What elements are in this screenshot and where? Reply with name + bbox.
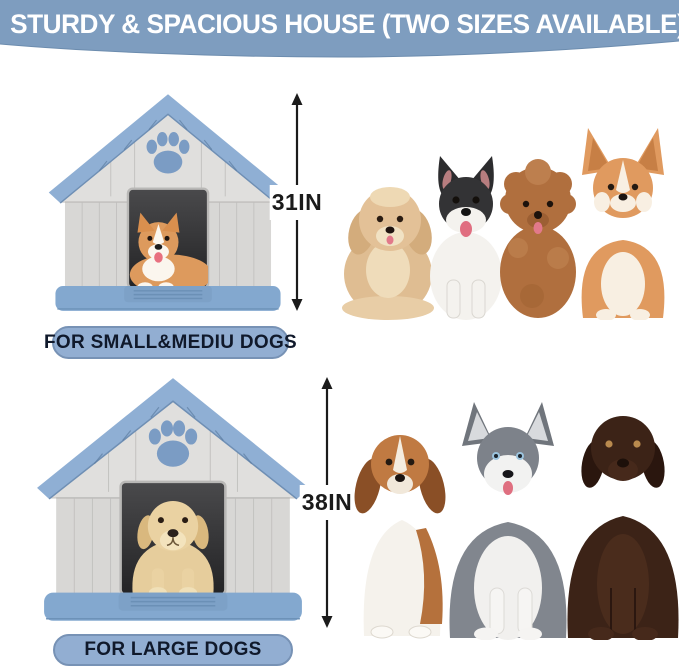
height-dimension-arrow-large: 38IN	[320, 377, 334, 628]
large-breed-dogs-image	[334, 388, 679, 640]
product-infographic: STURDY & SPACIOUS HOUSE (TWO SIZES AVAIL…	[0, 0, 679, 672]
large-dog-house-image	[32, 372, 314, 642]
small-breed-dogs-image	[336, 108, 679, 320]
large-house-badge: FOR LARGE DOGS	[53, 634, 293, 666]
small-house-badge-label: FOR SMALL&MEDIU DOGS	[44, 332, 297, 354]
dog-husky	[449, 402, 566, 640]
small-house-badge: FOR SMALL&MEDIU DOGS	[52, 326, 289, 359]
height-dimension-arrow-small: 31IN	[290, 93, 304, 311]
dog-havanese	[342, 187, 436, 320]
large-house-badge-label: FOR LARGE DOGS	[84, 639, 261, 661]
header-banner: STURDY & SPACIOUS HOUSE (TWO SIZES AVAIL…	[0, 0, 679, 62]
dog-french-bulldog	[430, 156, 502, 320]
dog-poodle	[500, 159, 576, 318]
banner-title: STURDY & SPACIOUS HOUSE (TWO SIZES AVAIL…	[10, 9, 669, 40]
small-dog-house-image	[44, 86, 292, 322]
height-value-small: 31IN	[270, 185, 325, 220]
dog-corgi	[582, 128, 665, 320]
dog-beagle	[350, 435, 451, 638]
dog-chocolate-labrador	[567, 416, 678, 640]
